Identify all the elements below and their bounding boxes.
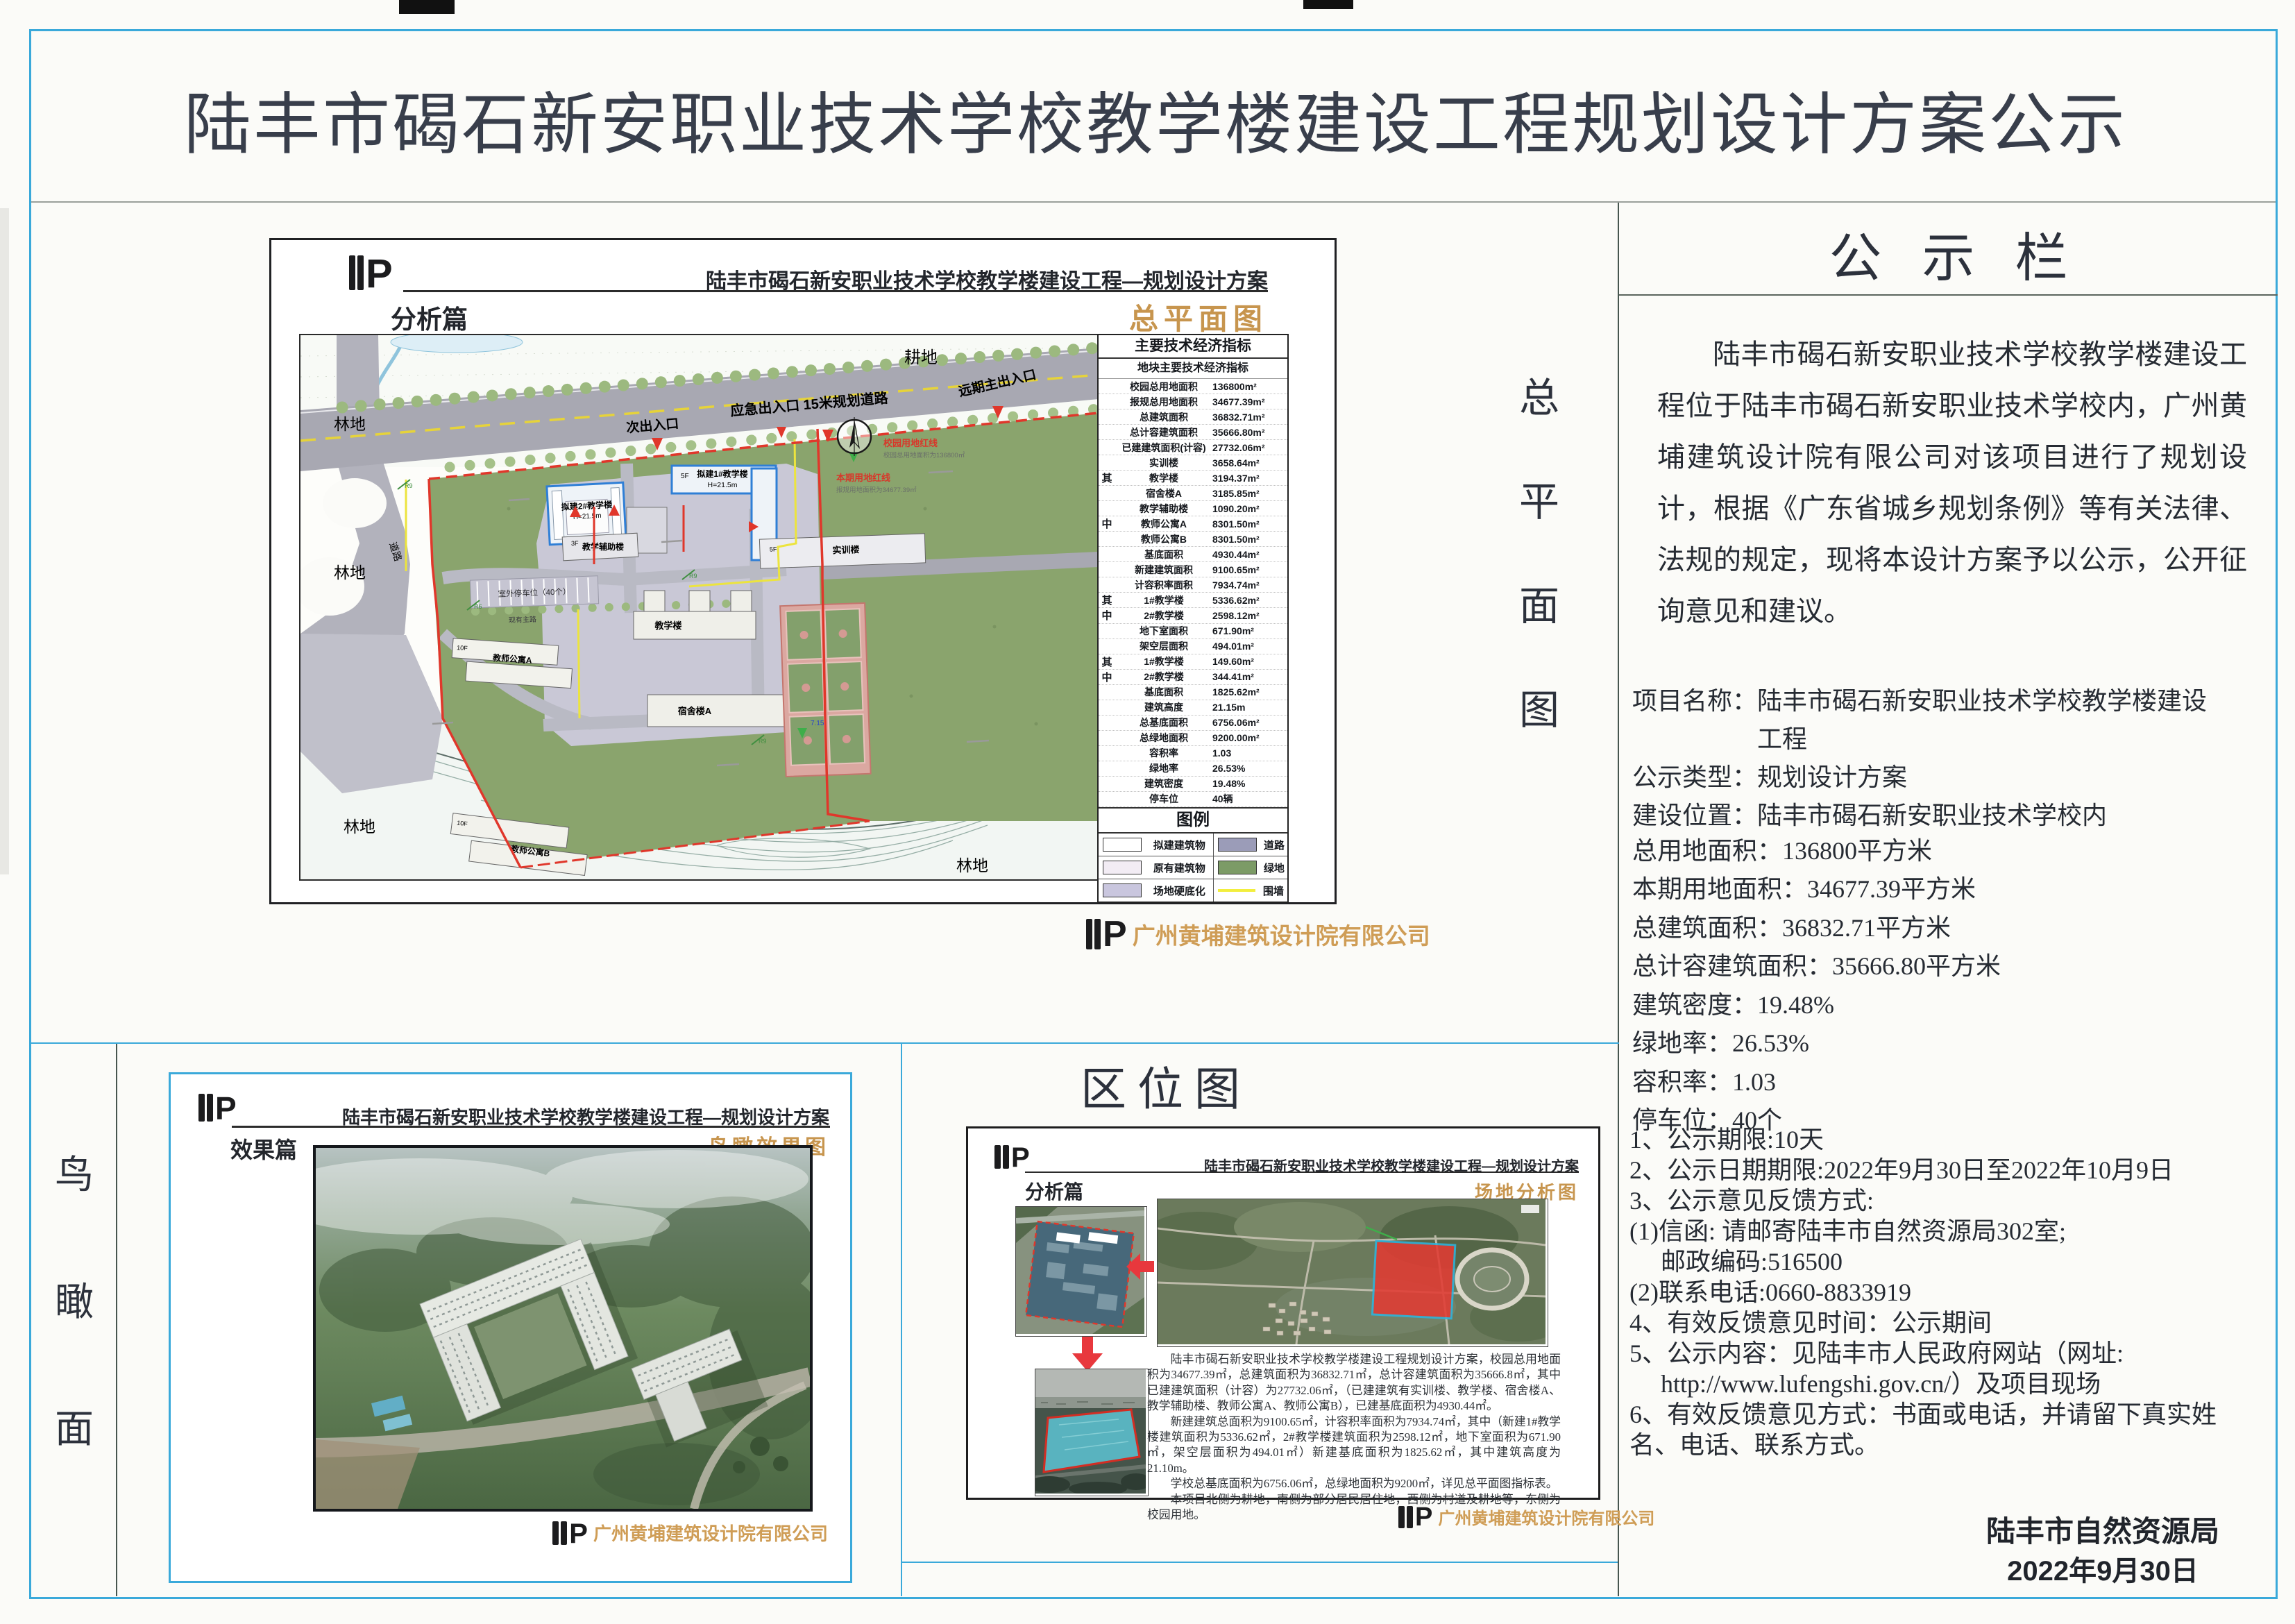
title-divider [31,201,2276,203]
announcement-note-line: 1、公示期限:10天 [1629,1124,2286,1155]
left-arrow-icon [1126,1252,1154,1281]
indicator-row: 建筑密度 19.48% [1099,777,1287,792]
indicator-row: 停车位 40辆 [1099,792,1287,807]
announcement-note-line: http://www.lufengshi.gov.cn/）及项目现场 [1629,1369,2286,1399]
section-label: 分析篇 [1025,1177,1083,1205]
campus-red-line-label: 校园用地红线 [883,438,938,448]
analysis-paragraph: 陆丰市碣石新安职业技术学校教学楼建设工程规划设计方案，校园总用地面积为34677… [1147,1352,1561,1414]
indicator-row: 总基底面积 6756.06m² [1099,716,1287,731]
aerial-rendering-photo [313,1145,813,1512]
aux-building: 3F 教学辅助楼 [562,533,638,561]
site-analysis-text: 陆丰市碣石新安职业技术学校教学楼建设工程规划设计方案，校园总用地面积为34677… [1147,1352,1561,1523]
design-institute-logo: P [552,1521,588,1545]
indicator-row: 中 教师公寓A 8301.50m² [1099,516,1287,532]
announcement-signature: 陆丰市自然资源局 2022年9月30日 [1971,1512,2235,1591]
sheet-label: 总平面图 [1129,296,1268,338]
svg-text:10F: 10F [457,644,468,652]
announcement-note-line: 3、公示意见反馈方式: [1629,1185,2286,1216]
announcement-date: 2022年9月30日 [1971,1552,2235,1591]
analysis-paragraph: 学校总基底面积为6756.06㎡，总绿地面积为9200㎡，详见总平面图指标表。 [1147,1476,1561,1491]
indicator-row: 总计容建筑面积 35666.80m² [1099,425,1287,440]
header-rule [403,290,1268,292]
svg-text:报规用地面积为34677.39㎡: 报规用地面积为34677.39㎡ [836,486,917,494]
indicator-row: 新建建筑面积 9100.65m² [1099,562,1287,577]
announcement-note-line: 5、公示内容：见陆丰市人民政府网站（网址: [1629,1338,2286,1369]
announcement-metric-line: 总计容建筑面积：35666.80平方米 [1632,947,2285,986]
indicator-rows: 校园总用地面积 136800m² 报规总用地面积 34677.39m² 总建筑面… [1099,379,1287,807]
indicator-row: 容积率 1.03 [1099,746,1287,761]
indicator-row: 已建建筑面积(计容) 27732.06m² [1099,440,1287,455]
company-credit: P 广州黄埔建筑设计院有限公司 [1398,1505,1654,1529]
announcement-title: 公示栏 [1619,215,2278,291]
company-credit: P 广州黄埔建筑设计院有限公司 [1086,917,1430,951]
indicator-row: 校园总用地面积 136800m² [1099,379,1287,394]
announcement-metric-line: 总建筑面积：36832.71平方米 [1632,909,2285,948]
forest-label: 林地 [334,416,366,433]
legend-swatch [1103,883,1142,897]
analysis-paragraph: 新建建筑总面积为9100.65㎡，计容积率面积为7934.74㎡，其中（新建1#… [1147,1414,1561,1477]
new-building-1-label: 拟建1#教学楼 [697,468,747,479]
legend-row: 原有建筑物 绿地 [1099,856,1287,879]
site-ground-photo [1035,1369,1149,1496]
svg-text:10F: 10F [457,819,468,827]
indicator-row: 中 2#教学楼 344.41m² [1099,670,1287,685]
indicator-row: 基底面积 1825.62m² [1099,685,1287,700]
forest-label: 林地 [334,564,366,582]
training-building-label: 实训楼 [832,544,860,555]
scan-artifact [1303,0,1353,9]
design-institute-logo: P [198,1094,237,1122]
svg-text:5F: 5F [681,473,689,480]
scan-smudge [0,208,9,874]
design-institute-logo: P [349,255,393,290]
header-rule [1025,1172,1579,1173]
announcement-metric-line: 本期用地面积：34677.39平方米 [1632,870,2285,909]
indicator-row: 总绿地面积 9200.00m² [1099,731,1287,746]
horizontal-divider [31,1042,1619,1044]
farmland-label: 耕地 [904,348,938,367]
section-label: 效果篇 [230,1133,297,1165]
svg-text:3F: 3F [571,540,579,547]
announcement-note-line: 6、有效反馈意见方式：书面或电话，并请留下真实姓 [1629,1399,2286,1430]
dorm-a-label: 宿舍楼A [678,706,712,716]
forest-label: 林地 [956,857,988,874]
current-red-line-label: 本期用地红线 [836,473,890,483]
vertical-label-char: 总 [1519,365,1559,423]
indicator-row: 报规总用地面积 34677.39m² [1099,394,1287,409]
indicators-title: 主要技术经济指标 [1099,335,1287,359]
site-plan-panel: P 陆丰市碣石新安职业技术学校教学楼建设工程—规划设计方案 分析篇 总平面图 [269,238,1337,904]
vertical-label-char: 鸟 [55,1144,94,1200]
indicators-table: 主要技术经济指标 地块主要技术经济指标 校园总用地面积 136800m² 报规总… [1097,334,1289,903]
teaching-building-label: 教学楼 [654,620,681,631]
legend-row: 拟建建筑物 道路 [1099,834,1287,856]
announcement-note-line: (2)联系电话:0660-8833919 [1629,1277,2286,1308]
aux-building-label: 教学辅助楼 [582,541,624,552]
running-track [1457,1250,1527,1308]
indicator-row: 计容积率面积 7934.74m² [1099,577,1287,593]
project-site-marker [1372,1241,1455,1319]
indicator-row: 实训楼 3658.64m² [1099,455,1287,471]
down-arrow-icon [1072,1337,1103,1371]
announcement-note-line: 2、公示日期期限:2022年9月30日至2022年10月9日 [1629,1155,2286,1185]
announcement-note-line: 邮政编码:516500 [1629,1246,2286,1277]
indicator-row: 总建筑面积 36832.71m² [1099,409,1287,425]
vertical-label-char: 瞰 [55,1271,94,1327]
vertical-label-aerial: 鸟瞰面 [53,1144,96,1454]
announcement-notes: 1、公示期限:10天2、公示日期期限:2022年9月30日至2022年10月9日… [1629,1033,2286,1460]
indicator-row: 地下室面积 671.90m² [1099,624,1287,639]
indicator-row: 绿地率 26.53% [1099,761,1287,777]
header-rule [232,1126,830,1128]
level-annotation: 7.15 [811,720,824,727]
teaching-building: 教学楼 [634,591,756,639]
indicator-row: 其 1#教学楼 5336.62m² [1099,593,1287,608]
announcement-field-line: 项目名称：陆丰市碣石新安职业技术学校教学楼建设 [1632,682,2285,720]
satellite-location-photo [1157,1199,1548,1347]
announcement-note-line: 名、电话、联系方式。 [1629,1430,2286,1460]
legend-row: 场地硬底化 围墙 [1099,879,1287,902]
indicators-subtitle: 地块主要技术经济指标 [1099,359,1287,379]
indicator-row: 其 教学楼 3194.37m² [1099,471,1287,486]
indicator-row: 教学辅助楼 1090.20m² [1099,501,1287,516]
announcement-metric-line: 总用地面积：136800平方米 [1632,832,2285,871]
outdoor-parking: 室外停车位（40个） [470,576,598,608]
scan-artifact [399,0,455,14]
company-credit: P 广州黄埔建筑设计院有限公司 [552,1520,828,1546]
training-building: 5F 实训楼 [759,534,925,568]
legend-wall-line-swatch [1218,884,1255,897]
issuing-authority: 陆丰市自然资源局 [1971,1512,2235,1552]
design-institute-logo: P [994,1145,1030,1169]
indicator-row: 中 2#教学楼 2598.12m² [1099,608,1287,623]
announcement-metric-line: 建筑密度：19.48% [1632,986,2285,1025]
poster-sheet: 陆丰市碣石新安职业技术学校教学楼建设工程规划设计方案公示 总平面图 鸟瞰面 P … [0,0,2295,1624]
legend-swatch [1218,838,1257,852]
announcement-note-line: (1)信函: 请邮寄陆丰市自然资源局302室; [1629,1216,2286,1246]
vertical-label-char: 面 [55,1398,94,1454]
site-analysis-panel: P 陆丰市碣石新安职业技术学校教学楼建设工程—规划设计方案 分析篇 场地分析图 [966,1126,1600,1500]
teacher-apartment-a: 10F 教师公寓A [450,638,574,688]
vertical-label-char: 面 [1519,573,1559,632]
indicator-row: 教师公寓B 8301.50m² [1099,532,1287,547]
design-institute-logo: P [1398,1506,1432,1528]
legend-title: 图例 [1099,807,1287,834]
indicator-row: 架空层面积 494.01m² [1099,639,1287,654]
announcement-title-rule [1619,294,2278,296]
master-plan-svg: 室外停车位（40个） 现有主路 拟建2#教学楼 H=21.5m 5F [300,335,1099,879]
location-section-bottom-line [902,1562,1618,1563]
svg-text:5F: 5F [770,545,777,552]
left-column-divider [116,1044,117,1596]
forest-label: 林地 [344,818,375,836]
indicator-row: 宿舍楼A 3185.85m² [1099,486,1287,501]
master-plan-drawing: 室外停车位（40个） 现有主路 拟建2#教学楼 H=21.5m 5F [299,334,1100,881]
announcement-note-line: 4、有效反馈意见时间：公示期间 [1629,1308,2286,1338]
aerial-view-panel: P 陆丰市碣石新安职业技术学校教学楼建设工程—规划设计方案 效果篇 鸟瞰效果图 [169,1072,852,1583]
section-label: 分析篇 [391,298,468,336]
legend-swatch [1103,861,1142,874]
indicator-row: 基底面积 4930.44m² [1099,547,1287,562]
svg-text:校园总用地面积为136800㎡: 校园总用地面积为136800㎡ [883,451,965,459]
building-height-label: H=21.5m [708,481,738,489]
vertical-label-char: 图 [1519,677,1559,736]
vertical-label-master-plan: 总平面图 [1517,365,1561,736]
page-title: 陆丰市碣石新安职业技术学校教学楼建设工程规划设计方案公示 [139,69,2172,167]
legend-swatch [1218,861,1257,874]
design-institute-logo: P [1086,919,1127,949]
vertical-label-char: 平 [1519,469,1559,527]
location-map-title: 区位图 [1020,1052,1312,1119]
indicator-row: 建筑高度 21.15m [1099,700,1287,716]
right-column-divider [1618,203,1619,1596]
bottom-section-divider [901,1044,902,1596]
indicator-row: 其 1#教学楼 149.60m² [1099,654,1287,670]
legend-swatch [1103,838,1142,852]
